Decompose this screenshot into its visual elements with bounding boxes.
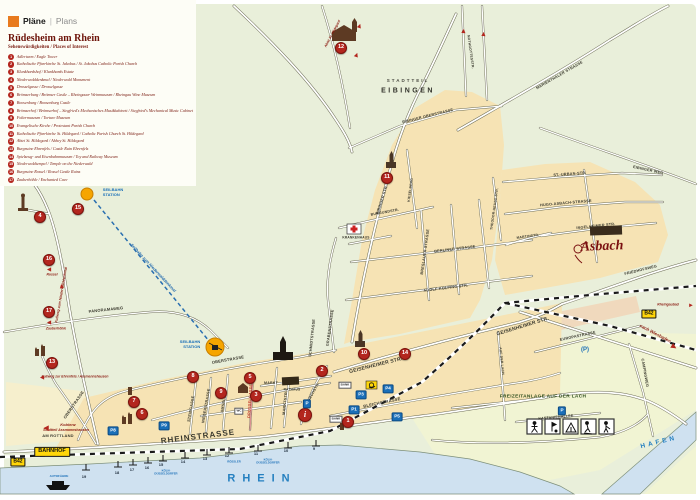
arrow-zauberhoehle-icon: ►: [46, 319, 53, 326]
rathaus-building: [282, 377, 299, 386]
arrow-koblenz-icon: ►: [42, 424, 51, 433]
legend-item: 7Boosenburg / Boosenburg Castle: [8, 99, 193, 107]
parking-badge-p4[interactable]: P4: [383, 384, 394, 393]
b42-badge: B42: [641, 310, 656, 319]
parking-badge-p9[interactable]: P9: [159, 421, 170, 430]
legend-item: 5Drosselgasse / Drosselgasse: [8, 84, 193, 92]
parking-badge[interactable]: P: [558, 406, 566, 415]
poi-marker-15[interactable]: 15: [72, 203, 84, 215]
legend-item: 11Katholische Pfarrkirche St. Hildegard …: [8, 130, 193, 138]
direction-rheingaubad: Rheingaubad: [657, 303, 678, 306]
wc-badge: WC: [234, 408, 243, 415]
legend-item: 2Katholische Pfarrkirche St. Jakobus / S…: [8, 61, 193, 69]
poi-marker-5[interactable]: 5: [244, 372, 256, 384]
pier-number: 15: [159, 463, 163, 467]
legend-item: 3Klunkhardshof / Klunkhards Estate: [8, 68, 193, 76]
river-label: RHEIN: [227, 474, 296, 485]
krankenhaus-icon: [347, 224, 361, 234]
page-header: Pläne | Plans: [8, 16, 77, 27]
poi-marker-1[interactable]: 1: [342, 416, 354, 428]
legend-item: 4Niederwalddenkmal / Niederwald Monument: [8, 76, 193, 84]
poi-marker-10[interactable]: 10: [358, 348, 370, 360]
parking-badge-p5[interactable]: P5: [392, 412, 403, 421]
arrow-rheingaubad-icon: ►: [688, 303, 694, 309]
pier-number: 16: [145, 466, 149, 470]
bank-badge: BANK: [338, 382, 351, 389]
post-office-icon: [366, 381, 377, 389]
legend-item: 16Burgruine Rossel / Rossel Castle Ruins: [8, 168, 193, 176]
rathaus-label: RATHAUS: [284, 388, 301, 391]
legend-item: 1Adlerturm / Eagle Tower: [8, 53, 193, 61]
legend-subtitle: Sehenswürdigkeiten / Places of Interest: [8, 46, 88, 51]
arrow-road-icon: ►: [58, 282, 66, 290]
legend-item: 13Burgruine Ehrenfels / Castle Ruin Ehre…: [8, 145, 193, 153]
legend-item: 10Evangelische Kirche / Protestant Paris…: [8, 122, 193, 130]
poi-marker-3[interactable]: 3: [250, 390, 262, 402]
arrow-road-icon: ►: [480, 30, 488, 38]
leisure-area-label: FREIZEITANLAGE AUF DER LACH: [500, 396, 586, 401]
pier-number: 18: [115, 471, 119, 475]
poi-marker-12[interactable]: 12: [335, 42, 347, 54]
leisure-icons: [527, 419, 614, 434]
legend-list: 1Adlerturm / Eagle Tower 2Katholische Pf…: [8, 53, 193, 184]
pier-number: 9: [313, 447, 315, 451]
street-label: AM ROTTLAND: [42, 434, 74, 438]
legend-item: 9Foltermuseum / Torture Museum: [8, 115, 193, 123]
poi-marker-16[interactable]: 16: [43, 254, 55, 266]
legend-item: 8Brömserhof / Brömserhof – Siegfried's M…: [8, 107, 193, 115]
poi-marker-2[interactable]: 2: [316, 365, 328, 377]
parking-badge[interactable]: P: [303, 399, 311, 408]
legend-item: 14Spielzeug- und Eisenbahnmuseum / Toy a…: [8, 153, 193, 161]
header-separator: |: [50, 17, 52, 26]
brand-square-icon: [8, 16, 19, 27]
poi-marker-7[interactable]: 7: [128, 396, 140, 408]
pier-company-label: KÖLN- DÜSSELDORFER: [154, 470, 177, 477]
pier-company-label: RÖSSLER: [227, 460, 241, 463]
markt-label: MARKT: [264, 382, 278, 386]
seilbahn-station-bottom-label: SEILBAHN STATION: [180, 340, 200, 350]
header-title-en: Plans: [56, 17, 77, 26]
parking-badge-p8[interactable]: P8: [108, 426, 119, 435]
pier-number: 14: [181, 460, 185, 464]
pier-number: 12: [225, 454, 229, 458]
poi-marker-13[interactable]: 13: [46, 357, 58, 369]
direction-zauberhoehle: Zauberhöhle: [46, 327, 66, 330]
parking-badge-p3[interactable]: P3: [356, 390, 367, 399]
pier-number: 11: [254, 452, 258, 456]
asbach-logo: Asbach: [580, 239, 623, 254]
poi-marker-4[interactable]: 4: [34, 211, 46, 223]
b42-badge: B42: [10, 458, 25, 467]
district-label: STADTTEIL: [387, 79, 429, 84]
poi-marker-17[interactable]: 17: [43, 306, 55, 318]
parking-badge-p1[interactable]: P1: [349, 405, 360, 414]
krankenhaus-label: KRANKENHAUS: [342, 236, 369, 239]
seilbahn-station-top-icon[interactable]: [81, 188, 93, 200]
seilbahn-station-bottom-icon[interactable]: [206, 338, 224, 356]
info-marker[interactable]: i: [298, 408, 312, 422]
direction-koblenz: Koblenz: [60, 423, 76, 427]
seilbahn-station-top-label: SEILBAHN STATION: [103, 188, 123, 198]
map-title: Rüdesheim am Rhein: [8, 34, 100, 44]
parking-badge-planned[interactable]: (P): [581, 347, 589, 353]
arrow-rossel-icon: ►: [46, 266, 53, 273]
poi-marker-11[interactable]: 11: [381, 172, 393, 184]
legend-item: 12Abtei St. Hildegard / Abbey St. Hildeg…: [8, 138, 193, 146]
bank-badge: BANK: [329, 416, 342, 423]
legend-item: 17Zauberhöhle / Enchanted Cave: [8, 176, 193, 184]
pier-company-label: KÖLN- DÜSSELDORFER: [256, 459, 279, 466]
direction-rossel: Rossel: [46, 273, 57, 276]
direction-ehrenfels: Fußweg zur Ehrenfels / Assmannshausen: [42, 375, 109, 378]
bahnhof-badge: BAHNHOF: [34, 447, 70, 457]
poi-marker-14[interactable]: 14: [399, 348, 411, 360]
tourist-map-ruedesheim: Pläne | Plans Rüdesheim am Rhein Sehensw…: [0, 0, 700, 500]
legend-item: 6Brömserburg / Brömser Castle – Rheingau…: [8, 91, 193, 99]
ferry-label: AUTOFÄHRE: [50, 475, 69, 479]
pier-number: 17: [130, 468, 134, 472]
poi-marker-6[interactable]: 6: [136, 408, 148, 420]
pier-number: 10: [284, 449, 288, 453]
pier-number: 13: [203, 457, 207, 461]
arrow-ehrenfels-icon: ►: [39, 374, 46, 381]
legend-item: 15Niederwaldtempel / Temple on the Niede…: [8, 161, 193, 169]
boosenburg-icon: [128, 387, 132, 395]
district-name: EIBINGEN: [381, 88, 435, 95]
poi-marker-8[interactable]: 8: [187, 371, 199, 383]
pier-number: 19: [82, 475, 86, 479]
arrow-road-icon: ►: [460, 27, 468, 35]
header-title-de: Pläne: [23, 17, 46, 26]
poi-marker-9[interactable]: 9: [215, 387, 227, 399]
